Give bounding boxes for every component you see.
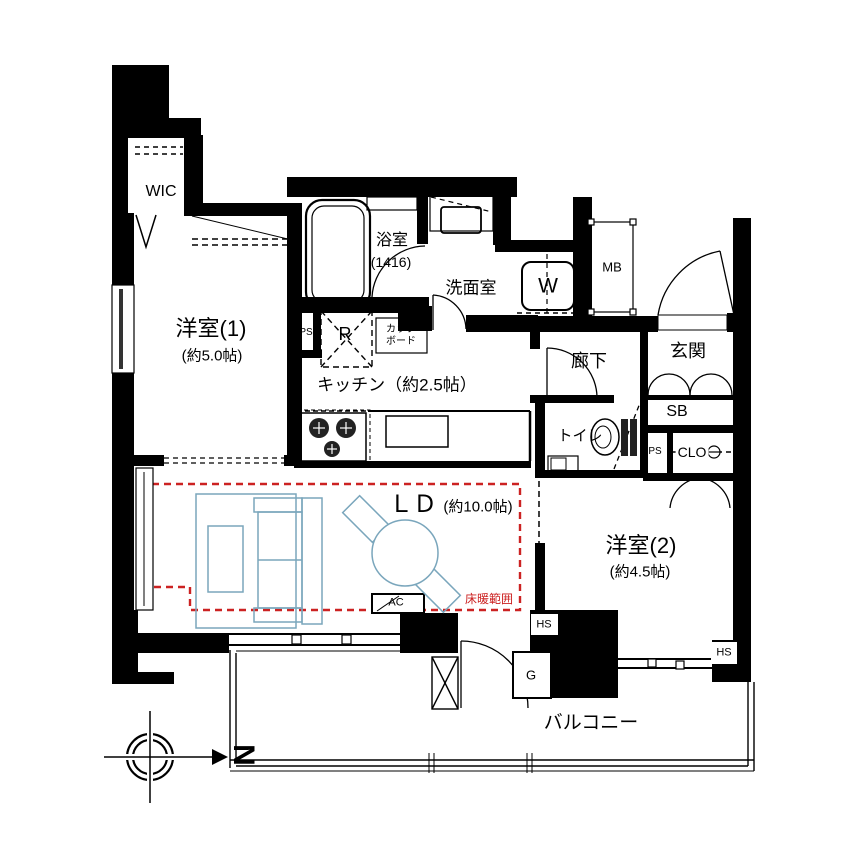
room-label-toilet: トイレ [557, 429, 602, 444]
washroom-door [433, 295, 466, 330]
room-label-hallway: 廊下 [571, 352, 607, 370]
label-hose-spigot-right: HS [716, 648, 731, 659]
floorplan: WIC 洋室(1) (約5.0帖) 浴室 (1416) 洗面室 W MB 玄関 … [0, 0, 859, 857]
ld-side-window [136, 468, 153, 610]
room-label-entrance: 玄関 [670, 342, 706, 360]
kitchen-stove [297, 410, 370, 465]
escape-hatch [432, 657, 458, 709]
room-label-living-dining: ＬＤ [389, 493, 437, 517]
wic-folding-door [136, 215, 156, 247]
bedroom1-window [112, 285, 134, 373]
label-floor-heating: 床暖範囲 [465, 593, 513, 605]
ld-sliding-window [229, 634, 400, 645]
floorplan-drawing [0, 0, 859, 857]
bath-counter [367, 197, 417, 210]
label-shoe-box: SB [666, 404, 687, 420]
north-arrow [212, 749, 228, 765]
label-pipe-space-kitchen: PS [299, 328, 312, 338]
coffee-table [208, 526, 243, 592]
room-label-kitchen: キッチン（約2.5帖） [317, 377, 477, 394]
label-air-conditioner: AC [388, 598, 403, 609]
label-cupboard-line1: カップ [386, 324, 416, 336]
room-label-wic: WIC [145, 184, 176, 200]
label-refrigerator-space: R [339, 325, 352, 343]
bedroom1-closet [192, 216, 296, 245]
label-hose-spigot-left: HS [536, 620, 551, 631]
compass-north-letter: N [228, 744, 258, 766]
room-label-bedroom1: 洋室(1) [176, 318, 247, 340]
entrance-door [658, 251, 734, 330]
room-label-bedroom2: 洋室(2) [606, 535, 677, 557]
bathtub [306, 200, 370, 308]
label-closet: CLO [676, 445, 709, 459]
kitchen-sink [386, 416, 448, 447]
room-size-bathroom: (1416) [371, 255, 411, 269]
label-washing-machine: W [538, 276, 558, 297]
sofa [254, 498, 322, 624]
bedroom2-double-door [670, 478, 730, 508]
label-cupboard-line2: ボード [386, 336, 416, 348]
room-size-living-dining: (約10.0帖) [443, 500, 512, 515]
label-pipe-space-hall: PS [648, 447, 661, 457]
room-size-bedroom2: (約4.5帖) [610, 565, 671, 580]
bedroom1-sliding-door [164, 458, 284, 463]
shoebox-doors [648, 374, 732, 395]
wic-hanger-pipe [135, 147, 183, 154]
room-label-bathroom: 浴室 [376, 233, 408, 249]
label-cupboard: カップ ボード [386, 324, 416, 348]
label-meter-box: MB [602, 261, 622, 274]
dining-table [372, 520, 438, 586]
label-gas-meter: G [526, 669, 536, 682]
washbasin-cabinet [430, 195, 493, 233]
kitchen-island [294, 410, 531, 468]
room-label-washroom: 洗面室 [446, 280, 497, 297]
room-label-balcony: バルコニー [544, 714, 639, 733]
bedroom2-sliding-window [618, 659, 712, 669]
north-compass [104, 711, 228, 803]
room-size-bedroom1: (約5.0帖) [182, 349, 243, 364]
